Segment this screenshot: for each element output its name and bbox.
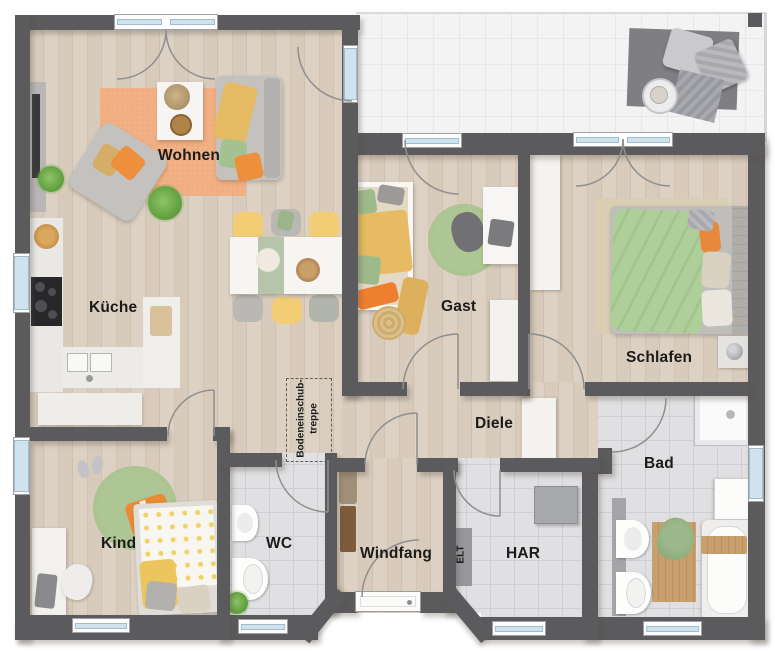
dining-chair <box>233 295 263 322</box>
plant-icon <box>38 166 64 192</box>
burner <box>35 282 45 292</box>
dining-chair <box>272 297 302 324</box>
kitchen-sink <box>90 353 112 372</box>
wall <box>598 448 612 474</box>
dining-chair <box>233 212 263 239</box>
french-door-living <box>114 14 218 30</box>
attic-stairs-label: Bodeneinschub- treppe <box>296 377 321 461</box>
bed-headboard <box>732 206 748 334</box>
window-bad-south <box>643 621 702 636</box>
dried-plant-icon <box>164 84 190 110</box>
wall <box>500 458 600 472</box>
kids-monitor <box>34 573 57 609</box>
window-kitchen <box>13 253 30 313</box>
room-label-har: HAR <box>506 545 540 563</box>
shoe-bench <box>340 506 356 552</box>
terrace-tray <box>650 86 668 104</box>
guest-pouf <box>372 306 406 340</box>
coffee-table-bowl <box>170 114 192 136</box>
wall <box>342 382 407 396</box>
terrace-corner-post <box>748 13 762 27</box>
sideboard <box>38 393 142 425</box>
porch-recess <box>315 613 481 651</box>
window-bad-east <box>748 445 764 502</box>
laptop <box>487 218 514 247</box>
room-label-bad: Bad <box>644 455 674 473</box>
dining-chair <box>309 295 339 322</box>
attic-stairs-line1: Bodeneinschub- <box>296 379 307 457</box>
floorplan-canvas: Bodeneinschub- treppe <box>0 0 775 651</box>
bidet-bowl <box>624 527 642 551</box>
room-label-kind: Kind <box>101 535 136 553</box>
cutting-board <box>150 306 172 336</box>
kids-pillow-gray <box>145 581 178 612</box>
window-wc <box>238 619 288 634</box>
room-label-wc: WC <box>266 535 292 553</box>
wall <box>582 458 598 640</box>
bathtub-caddy <box>701 536 747 554</box>
room-label-gast: Gast <box>441 298 476 316</box>
coat-rack-items <box>339 470 357 504</box>
palm-plant-icon <box>148 186 182 220</box>
burner <box>35 300 47 312</box>
wall <box>30 427 167 441</box>
wall <box>585 382 748 396</box>
terrace-door-gast <box>402 133 462 148</box>
har-equipment-box <box>534 486 578 524</box>
terrace-door-living <box>343 45 358 103</box>
sofa-pillow-orange <box>234 152 265 183</box>
entrance-door <box>355 591 421 612</box>
bed-pillow-white <box>701 289 733 327</box>
fruit-bowl <box>34 224 59 249</box>
window-kind <box>13 437 30 495</box>
dining-table <box>230 237 343 294</box>
burner <box>48 288 56 296</box>
bed-pillow-striped <box>686 208 715 232</box>
room-label-diele: Diele <box>475 415 513 433</box>
table-flowers <box>256 248 280 272</box>
dining-chair <box>309 212 339 239</box>
room-label-wohnen: Wohnen <box>158 147 220 165</box>
kids-pillow-tan <box>176 584 211 614</box>
table-lamp <box>726 343 743 360</box>
wall <box>337 458 365 472</box>
bedroom-wardrobe <box>530 155 560 290</box>
wc-basin-bowl <box>237 513 253 533</box>
kitchen-sink <box>67 353 88 372</box>
room-label-elt: ELT <box>456 545 467 563</box>
terrace-door-schlafen <box>573 132 673 147</box>
wall <box>460 382 527 396</box>
wall <box>518 150 530 396</box>
hall-closet <box>522 398 556 462</box>
guest-closet <box>490 300 520 381</box>
bath-cabinet <box>714 478 752 520</box>
tv-screen <box>32 94 40 178</box>
attic-stairs-line2: treppe <box>308 403 319 434</box>
room-label-windfang: Windfang <box>360 545 432 563</box>
wall <box>15 15 30 640</box>
wall <box>222 453 282 467</box>
window-har <box>492 621 546 636</box>
window-kind-south <box>72 618 130 633</box>
room-label-schlafen: Schlafen <box>626 349 692 367</box>
wall <box>748 140 765 640</box>
bed-pillow-tan <box>701 251 731 289</box>
shower-drain <box>726 410 735 419</box>
table-bowl <box>296 258 320 282</box>
shower-tray <box>700 396 746 440</box>
wc-toilet-seat <box>243 564 263 594</box>
burner <box>48 310 57 319</box>
room-label-kueche: Küche <box>89 299 137 317</box>
toilet-seat <box>626 578 646 608</box>
sofa-backrest <box>264 78 280 178</box>
faucet <box>86 375 93 382</box>
